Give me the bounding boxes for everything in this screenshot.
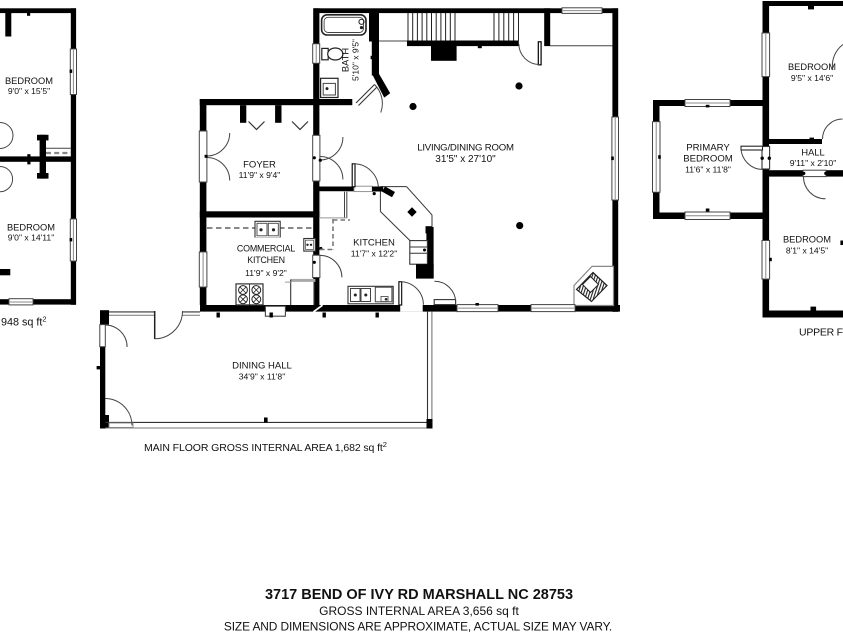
svg-text:9'11" x 2'10": 9'11" x 2'10" bbox=[790, 158, 837, 168]
svg-text:BEDROOM: BEDROOM bbox=[788, 62, 836, 72]
svg-text:BEDROOM: BEDROOM bbox=[683, 154, 733, 165]
svg-text:UPPER FLOOR GROSS INTERNAL ARE: UPPER FLOOR GROSS INTERNAL AREA 1,026 sq… bbox=[799, 327, 843, 339]
svg-text:FOYER: FOYER bbox=[243, 160, 276, 171]
svg-text:5'10" x 9'5": 5'10" x 9'5" bbox=[351, 39, 361, 81]
svg-text:LIVING/DINING ROOM: LIVING/DINING ROOM bbox=[417, 143, 514, 154]
svg-text:9'5" x 14'6": 9'5" x 14'6" bbox=[791, 73, 833, 83]
svg-text:GROSS INTERNAL AREA 3,656 sq f: GROSS INTERNAL AREA 3,656 sq ft bbox=[319, 604, 519, 618]
svg-text:BEDROOM: BEDROOM bbox=[7, 223, 55, 233]
svg-text:948 sq ft2: 948 sq ft2 bbox=[1, 315, 47, 329]
svg-text:9'0" x 14'11": 9'0" x 14'11" bbox=[8, 233, 55, 243]
svg-text:KITCHEN: KITCHEN bbox=[247, 255, 285, 265]
svg-text:11'9" x 9'2": 11'9" x 9'2" bbox=[245, 268, 287, 278]
svg-text:8'1" x 14'5": 8'1" x 14'5" bbox=[786, 246, 828, 256]
svg-text:COMMERCIAL: COMMERCIAL bbox=[237, 244, 295, 254]
svg-text:MAIN FLOOR GROSS INTERNAL AREA: MAIN FLOOR GROSS INTERNAL AREA 1,682 sq … bbox=[144, 440, 387, 454]
svg-text:3717 BEND OF IVY RD MARSHALL N: 3717 BEND OF IVY RD MARSHALL NC 28753 bbox=[265, 587, 573, 603]
svg-text:KITCHEN: KITCHEN bbox=[353, 238, 395, 249]
svg-text:HALL: HALL bbox=[801, 148, 824, 158]
svg-text:SIZE AND DIMENSIONS ARE APPROX: SIZE AND DIMENSIONS ARE APPROXIMATE, ACT… bbox=[224, 620, 612, 632]
svg-text:31'5" x 27'10": 31'5" x 27'10" bbox=[435, 154, 496, 165]
svg-text:BEDROOM: BEDROOM bbox=[783, 235, 831, 245]
svg-text:BATH: BATH bbox=[341, 48, 351, 72]
svg-text:PRIMARY: PRIMARY bbox=[686, 143, 730, 154]
svg-text:11'7" x 12'2": 11'7" x 12'2" bbox=[351, 249, 398, 259]
svg-text:9'0" x 15'5": 9'0" x 15'5" bbox=[8, 86, 50, 96]
svg-text:34'9" x 11'8": 34'9" x 11'8" bbox=[239, 372, 286, 382]
svg-text:DINING HALL: DINING HALL bbox=[232, 361, 292, 372]
svg-text:11'9" x 9'4": 11'9" x 9'4" bbox=[239, 170, 281, 180]
svg-text:11'6" x 11'8": 11'6" x 11'8" bbox=[685, 165, 731, 175]
svg-text:BEDROOM: BEDROOM bbox=[5, 76, 53, 86]
